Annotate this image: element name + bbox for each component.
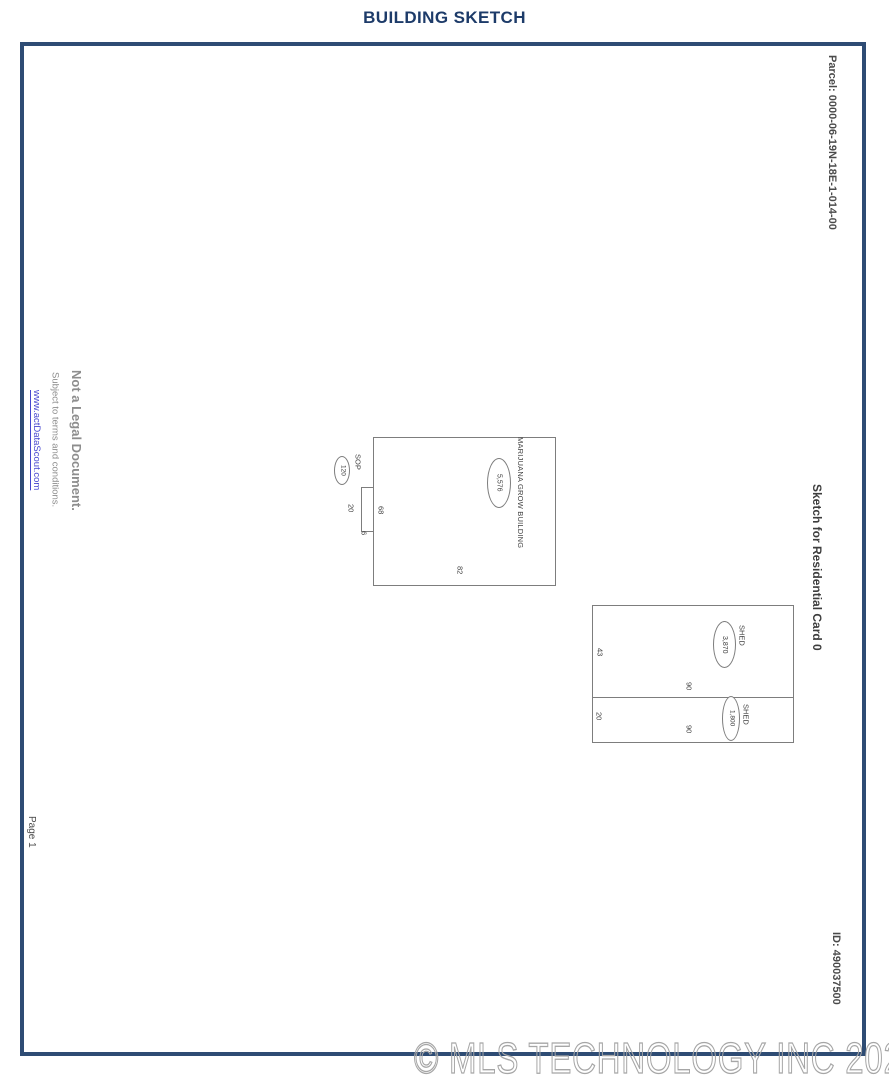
sop-dim-left: 20 (347, 504, 355, 512)
shed-top-label: SHED (738, 625, 746, 646)
grow-building-dim-left: 68 (377, 506, 385, 514)
grow-building-dim-bottom: 82 (456, 566, 464, 574)
sop-dim-bottom: 6 (360, 531, 368, 535)
mls-watermark: © MLS TECHNOLOGY INC 2025 (414, 1034, 889, 1084)
shed-bottom-label: SHED (742, 704, 750, 725)
shed-bottom-dim-bottom: 90 (685, 725, 693, 733)
sop-area-ellipse: 120 (334, 456, 350, 485)
sketch-card-title: Sketch for Residential Card 0 (810, 484, 824, 651)
building-sketch-page: BUILDING SKETCH Parcel: 0000-06-19N-18E-… (0, 0, 889, 1087)
grow-building-label: MARIJUANA GROW BUILDING (516, 437, 525, 586)
parcel-text: Parcel: 0000-06-19N-18E-1-014-00 (826, 55, 838, 230)
shed-top-area: 3,870 (721, 636, 728, 654)
shed-outline (592, 605, 794, 743)
grow-building-area-ellipse: 5,576 (487, 458, 511, 508)
sop-area: 120 (339, 465, 346, 476)
page-number: Page 1 (26, 816, 37, 848)
record-id-text: ID: 490037500 (830, 932, 842, 1005)
legal-notice: www.actDataScout.com Subject to terms an… (28, 352, 84, 528)
legal-headline: Not a Legal Document. (65, 352, 84, 528)
shed-top-area-ellipse: 3,870 (713, 621, 736, 668)
actdatascout-link[interactable]: www.actDataScout.com (28, 352, 42, 528)
shed-bottom-area: 1,800 (728, 710, 735, 726)
legal-terms-line: Subject to terms and conditions. (46, 352, 60, 528)
sop-outline (361, 487, 374, 532)
page-title: BUILDING SKETCH (0, 8, 889, 28)
shed-top-dim-bottom: 90 (685, 682, 693, 690)
grow-building-outline (373, 437, 556, 586)
sop-label: SOP (354, 454, 362, 470)
shed-top-dim-left: 43 (596, 648, 604, 656)
shed-bottom-dim-left: 20 (595, 712, 603, 720)
shed-bottom-area-ellipse: 1,800 (722, 696, 740, 741)
grow-building-area: 5,576 (496, 474, 503, 492)
